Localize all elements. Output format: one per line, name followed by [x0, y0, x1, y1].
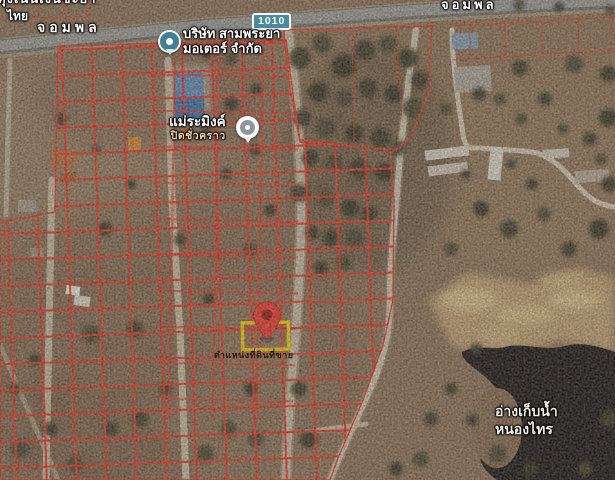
- pin-caption-label: ตำแหน่งที่ดินที่ขาย: [214, 348, 324, 362]
- road-label-chomphon-right: จอมพล: [441, 0, 497, 13]
- closed-place-name: แม่ระมิงค์: [169, 114, 226, 130]
- reservoir-line1: อ่างเก็บน้ำ: [495, 402, 558, 420]
- area-label-top-line2: ไทย: [7, 10, 28, 24]
- business-name-line1: บริษัท สามพระยา: [183, 27, 280, 42]
- closed-place-status: ปิดชั่วคราว: [169, 130, 226, 142]
- marker-tail-icon: [166, 49, 174, 55]
- closed-place-label[interactable]: แม่ระมิงค์ ปิดชั่วคราว: [169, 114, 226, 142]
- business-name-line2: มอเตอร์ จำกัด: [183, 42, 280, 57]
- road-label-chomphon-left: จอมพล: [37, 19, 101, 35]
- business-place-label[interactable]: บริษัท สามพระยา มอเตอร์ จำกัด: [183, 27, 280, 57]
- business-place-marker-icon[interactable]: [158, 30, 181, 53]
- marker-dot-icon: [166, 38, 173, 45]
- reservoir-label[interactable]: อ่างเก็บน้ำ หนองไทร: [495, 402, 558, 438]
- marker-dot-icon: [245, 125, 250, 130]
- map-viewport[interactable]: ทุ่งเนินเงินชะยา ไทย จอมพล 1010 จอมพล บร…: [0, 0, 615, 480]
- area-label-top-line1: ทุ่งเนินเงินชะยา: [0, 0, 97, 7]
- closed-place-marker-icon[interactable]: [236, 116, 259, 139]
- reservoir-line2: หนองไทร: [495, 420, 558, 438]
- marker-tail-icon: [244, 137, 252, 143]
